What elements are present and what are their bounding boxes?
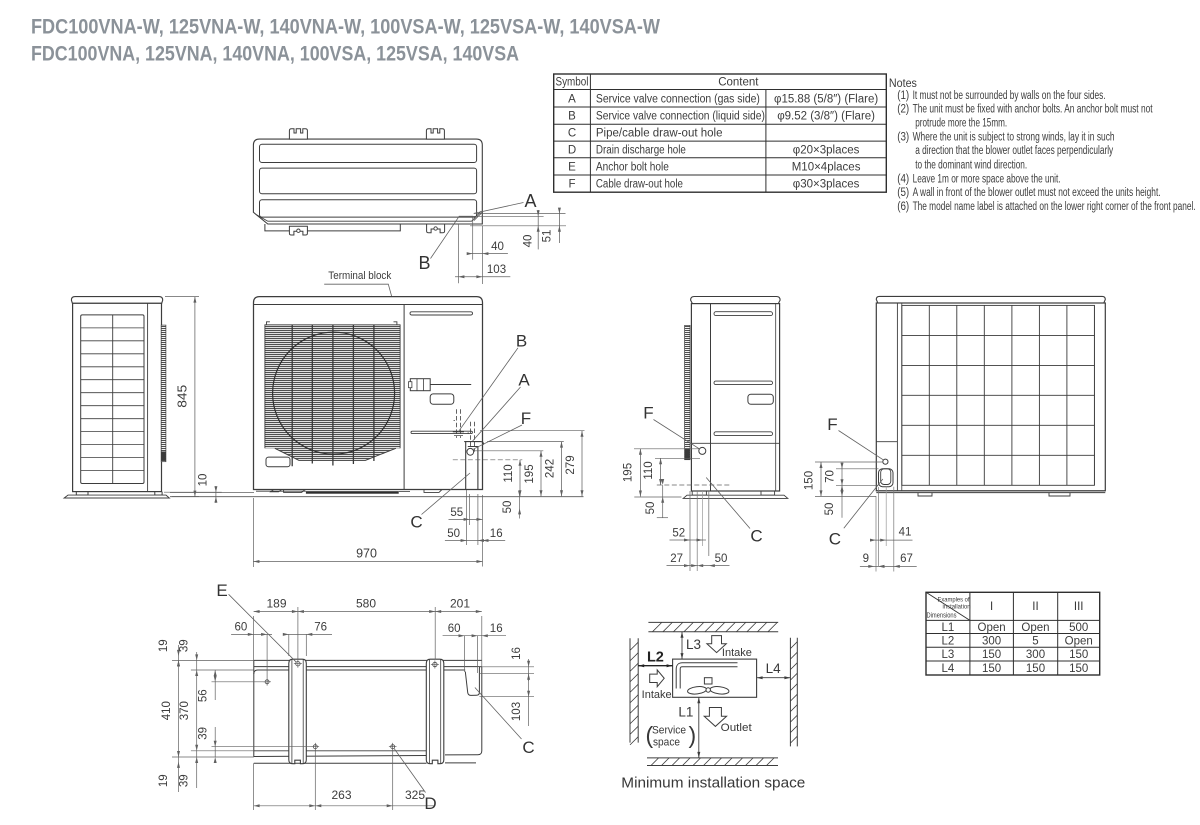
svg-text:L2: L2 [942,635,955,647]
svg-text:50: 50 [824,503,836,516]
svg-text:φ15.88 (5/8″) (Flare): φ15.88 (5/8″) (Flare) [774,93,878,105]
svg-text:9: 9 [863,553,869,565]
svg-text:A: A [568,93,576,105]
svg-text:Pipe/cable draw-out hole: Pipe/cable draw-out hole [596,128,723,140]
svg-text:Open: Open [1021,622,1049,634]
svg-text:19: 19 [158,639,170,652]
svg-text:(4): (4) [897,173,909,185]
svg-text:27: 27 [670,553,683,565]
svg-text:300: 300 [982,635,1001,647]
svg-text:201: 201 [450,597,470,611]
svg-text:Notes: Notes [889,78,917,90]
svg-text:Service: Service [652,725,686,737]
svg-text:C: C [410,513,422,532]
svg-text:(3): (3) [897,131,909,143]
svg-text:(2): (2) [897,104,909,116]
svg-text:50: 50 [447,528,460,540]
svg-text:Service valve connection (liqu: Service valve connection (liquid side) [596,111,765,123]
svg-text:Dimensions: Dimensions [927,611,957,620]
svg-text:E: E [216,581,227,600]
svg-text:189: 189 [266,597,286,611]
svg-text:): ) [689,722,697,748]
svg-text:51: 51 [542,230,554,243]
svg-text:C: C [522,738,534,757]
svg-text:103: 103 [487,264,506,276]
svg-text:L4: L4 [942,663,955,675]
svg-text:L1: L1 [678,705,693,720]
svg-text:B: B [516,332,527,351]
svg-text:110: 110 [503,464,515,482]
svg-text:C: C [829,530,841,549]
svg-text:410: 410 [161,701,173,720]
svg-text:B: B [418,253,430,273]
svg-text:195: 195 [623,463,635,482]
svg-text:50: 50 [502,501,514,514]
svg-text:50: 50 [645,502,657,515]
svg-text:φ20×3places: φ20×3places [793,144,860,156]
svg-text:Drain discharge hole: Drain discharge hole [596,144,686,156]
svg-text:370: 370 [179,701,191,720]
svg-text:Service valve connection (gas: Service valve connection (gas side) [596,93,760,105]
svg-text:40: 40 [491,241,504,253]
svg-text:39: 39 [178,639,190,652]
svg-text:A wall in front of the blower: A wall in front of the blower outlet mus… [913,187,1161,199]
svg-text:space: space [653,737,680,749]
svg-text:D: D [568,144,576,156]
svg-text:52: 52 [672,527,685,539]
svg-text:(6): (6) [897,201,909,213]
svg-text:Intake: Intake [642,689,672,701]
svg-text:Open: Open [1065,635,1093,647]
svg-text:16: 16 [490,528,503,540]
svg-text:F: F [521,409,531,428]
svg-text:Symbol: Symbol [556,77,589,89]
svg-text:19: 19 [158,774,170,787]
svg-text:Intake: Intake [722,647,752,659]
svg-text:II: II [1032,601,1038,613]
svg-text:It must not be surrounded by w: It must not be surrounded by walls on th… [913,90,1106,102]
svg-text:70: 70 [824,470,836,483]
svg-text:Cable draw-out hole: Cable draw-out hole [596,179,683,191]
svg-text:150: 150 [1069,663,1088,675]
svg-text:L1: L1 [942,622,955,634]
svg-text:(1): (1) [897,90,909,102]
svg-text:F: F [643,404,653,423]
svg-text:103: 103 [511,702,523,721]
svg-text:The model name label is attach: The model name label is attached on the … [913,201,1196,213]
svg-text:III: III [1074,601,1084,613]
svg-text:41: 41 [899,527,912,539]
svg-text:C: C [750,527,762,546]
svg-text:I: I [990,601,993,613]
svg-text:to the dominant wind direction: to the dominant wind direction. [915,159,1027,171]
svg-text:Anchor bolt hole: Anchor bolt hole [596,161,669,173]
svg-text:150: 150 [982,663,1001,675]
svg-text:150: 150 [1026,663,1045,675]
svg-text:protrude more the 15mm.: protrude more the 15mm. [915,117,1007,129]
svg-text:60: 60 [448,623,461,635]
svg-text:150: 150 [982,649,1001,661]
svg-text:279: 279 [565,455,577,474]
svg-text:Where the unit is subject to s: Where the unit is subject to strong wind… [913,131,1115,143]
svg-text:M10×4places: M10×4places [792,161,861,173]
svg-text:installation: installation [943,604,972,611]
svg-text:L3: L3 [942,649,955,661]
svg-text:67: 67 [900,553,913,565]
svg-text:The unit must be fixed with an: The unit must be fixed with anchor bolts… [913,104,1154,116]
svg-text:L4: L4 [766,661,782,676]
svg-text:56: 56 [197,689,209,702]
svg-text:A: A [524,191,536,211]
svg-text:110: 110 [643,461,655,479]
svg-text:150: 150 [804,471,816,490]
svg-text:76: 76 [314,622,327,634]
svg-text:Minimum installation space: Minimum installation space [621,775,805,792]
svg-text:Outlet: Outlet [721,722,752,734]
svg-text:50: 50 [715,553,728,565]
svg-text:C: C [568,128,576,140]
svg-text:Open: Open [978,622,1006,634]
svg-text:L2: L2 [647,650,664,666]
svg-text:300: 300 [1026,649,1045,661]
svg-text:Terminal block: Terminal block [328,270,392,282]
svg-text:L3: L3 [686,637,701,652]
svg-text:845: 845 [175,385,190,408]
svg-text:970: 970 [356,547,377,561]
svg-text:(5): (5) [897,187,909,199]
svg-text:195: 195 [524,464,536,483]
svg-text:FDC100VNA, 125VNA, 140VNA, 100: FDC100VNA, 125VNA, 140VNA, 100VSA, 125VS… [31,43,519,66]
svg-text:E: E [568,161,576,173]
svg-text:55: 55 [450,507,463,519]
svg-text:60: 60 [235,622,248,634]
svg-text:F: F [568,179,575,191]
svg-text:F: F [827,415,837,434]
svg-text:580: 580 [356,597,376,611]
svg-text:a direction that the blower ou: a direction that the blower outlet faces… [915,145,1113,157]
svg-text:16: 16 [511,647,523,660]
svg-text:φ9.52 (3/8″) (Flare): φ9.52 (3/8″) (Flare) [777,111,875,123]
svg-text:A: A [518,371,530,390]
svg-text:FDC100VNA-W, 125VNA-W, 140VNA-: FDC100VNA-W, 125VNA-W, 140VNA-W, 100VSA-… [31,16,660,39]
svg-text:16: 16 [490,623,503,635]
svg-text:5: 5 [1032,635,1038,647]
svg-text:D: D [424,794,436,813]
svg-text:500: 500 [1069,622,1088,634]
svg-text:Content: Content [718,77,759,89]
svg-text:263: 263 [331,788,351,802]
svg-text:Examples of: Examples of [938,597,970,604]
svg-text:40: 40 [523,235,535,248]
svg-text:39: 39 [178,774,190,787]
svg-text:Leave 1m or more space above t: Leave 1m or more space above the unit. [913,173,1061,185]
svg-text:φ30×3places: φ30×3places [793,179,860,191]
svg-text:39: 39 [197,727,209,740]
svg-text:242: 242 [544,459,556,478]
svg-text:150: 150 [1069,649,1088,661]
svg-text:10: 10 [198,474,210,487]
svg-text:325: 325 [405,788,425,802]
svg-text:B: B [568,111,576,123]
